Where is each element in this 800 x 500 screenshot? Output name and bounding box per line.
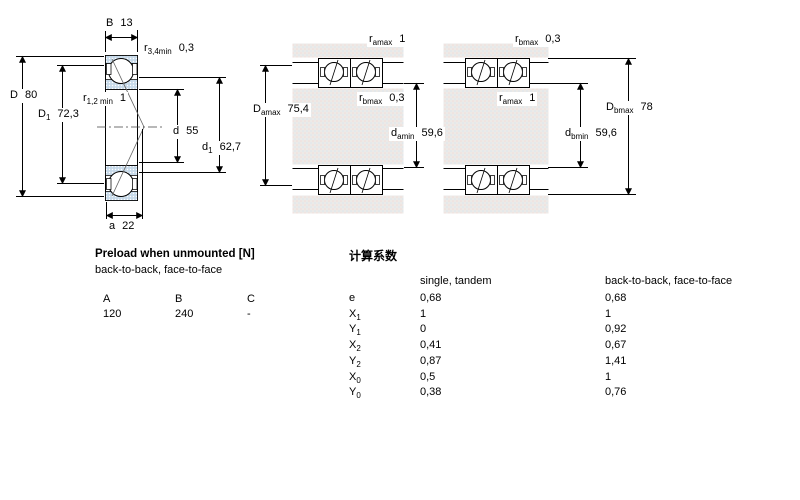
factor-single-value: 0,38 — [420, 385, 605, 401]
preload-col-header: C — [247, 293, 317, 305]
dim-label-damin: damin59,6 — [389, 127, 445, 141]
factor-single-value: 0,87 — [420, 354, 605, 370]
dim-label-ramax-a: ramax1 — [367, 33, 407, 47]
dim-label-B: B13 — [104, 17, 135, 31]
factor-single-value: 0,5 — [420, 370, 605, 386]
preload-title: Preload when unmounted [N] — [95, 248, 365, 260]
factors-corner-cell — [349, 271, 420, 291]
preload-value: 120 — [103, 308, 175, 320]
factor-single-value: 0,41 — [420, 338, 605, 354]
preload-col-header: A — [103, 293, 175, 305]
dim-label-d: d55 — [171, 125, 200, 139]
factor-btb-value: 1 — [605, 370, 775, 386]
preload-table: A B C 120 240 - — [95, 293, 365, 320]
ball-bottom — [109, 172, 134, 197]
dim-label-dbmin: dbmin59,6 — [563, 127, 619, 141]
factor-label: X0 — [349, 370, 420, 386]
dim-label-D: D80 — [8, 89, 39, 103]
dim-label-ramax-b: ramax1 — [497, 92, 537, 106]
preload-value: - — [247, 308, 317, 320]
factors-col1-header: single, tandem — [420, 271, 605, 291]
factor-label: X1 — [349, 307, 420, 323]
factor-label: Y2 — [349, 354, 420, 370]
dim-label-a: a22 — [107, 220, 136, 234]
bearing-datasheet-page: B13 r3,4min0,3 D80 D172,3 r1,2 min1 d55 … — [0, 0, 800, 500]
preload-subtitle: back-to-back, face-to-face — [95, 264, 365, 276]
factor-btb-value: 0,68 — [605, 291, 775, 307]
factor-btb-value: 0,76 — [605, 385, 775, 401]
factor-label: Y0 — [349, 385, 420, 401]
factor-label: e — [349, 291, 420, 307]
dim-label-d1: d162,7 — [200, 141, 243, 155]
factors-col2-header: back-to-back, face-to-face — [605, 271, 775, 291]
dim-label-r34: r3,4min0,3 — [142, 42, 196, 56]
factor-single-value: 1 — [420, 307, 605, 323]
dim-label-rbmax-a: rbmax0,3 — [357, 92, 407, 106]
factors-title: 计算系数 — [349, 247, 779, 264]
factor-single-value: 0,68 — [420, 291, 605, 307]
factors-table: single, tandem back-to-back, face-to-fac… — [349, 271, 779, 401]
factor-btb-value: 1 — [605, 307, 775, 323]
factor-btb-value: 0,67 — [605, 338, 775, 354]
ball-top — [109, 59, 134, 84]
calculation-factors-section: 计算系数 single, tandem back-to-back, face-t… — [349, 247, 779, 401]
factor-btb-value: 0,92 — [605, 322, 775, 338]
dim-label-r12: r1,2 min1 — [81, 92, 128, 106]
preload-section: Preload when unmounted [N] back-to-back,… — [95, 248, 365, 320]
factor-btb-value: 1,41 — [605, 354, 775, 370]
factor-label: Y1 — [349, 322, 420, 338]
preload-value: 240 — [175, 308, 247, 320]
factor-single-value: 0 — [420, 322, 605, 338]
dim-label-D1: D172,3 — [36, 108, 81, 122]
factor-label: X2 — [349, 338, 420, 354]
dim-label-rbmax-b: rbmax0,3 — [513, 33, 563, 47]
dim-label-Dbmax: Dbmax78 — [604, 101, 655, 115]
preload-col-header: B — [175, 293, 247, 305]
dim-label-Damax: Damax75,4 — [251, 103, 311, 117]
